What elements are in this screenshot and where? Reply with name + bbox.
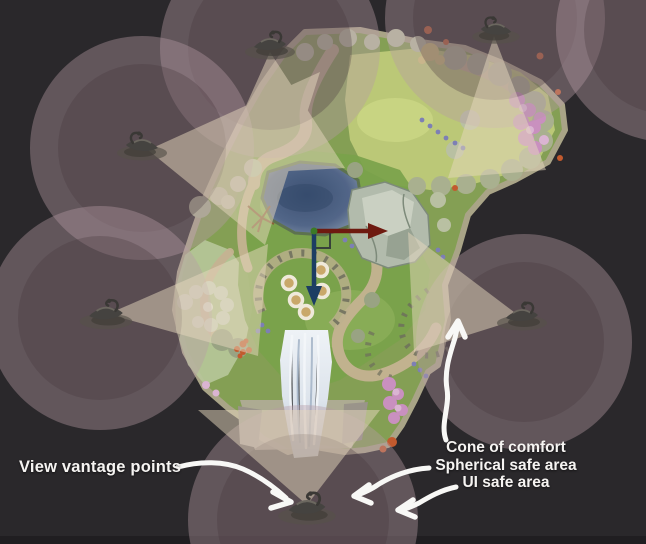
label-ui-safe-area: UI safe area <box>416 474 596 492</box>
label-spherical-safe-area: Spherical safe area <box>416 457 596 475</box>
vr-comfort-zones-diagram: View vantage points Cone of comfort Sphe… <box>0 0 646 544</box>
axis-origin-dot <box>311 228 318 235</box>
label-view-vantage-points: View vantage points <box>19 458 181 477</box>
safe-area-label-block: Cone of comfort Spherical safe area UI s… <box>416 439 596 492</box>
label-cone-of-comfort: Cone of comfort <box>416 439 596 457</box>
